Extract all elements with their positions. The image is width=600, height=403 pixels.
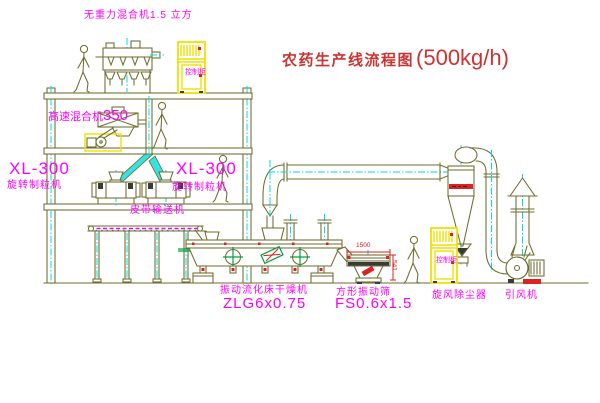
- control-cabinet-top: [178, 42, 205, 93]
- vibrating-sieve: [347, 249, 396, 284]
- worker-top-floor: [74, 45, 89, 92]
- granulator-right: [142, 170, 190, 206]
- worker-granulation-floor: [213, 155, 228, 202]
- worker-second-floor: [152, 102, 167, 149]
- granulator-left: [92, 170, 140, 206]
- gravity-free-mixer: [96, 38, 164, 93]
- high-speed-mixer: [85, 107, 146, 151]
- process-diagram-canvas: [0, 0, 600, 403]
- fluid-bed-dryer: [186, 214, 354, 283]
- exhaust-stack: [508, 174, 537, 258]
- worker-ground: [404, 236, 419, 283]
- control-cabinet-bottom: [431, 228, 457, 283]
- induced-draft-fan: [506, 246, 544, 284]
- cyclone-outlet-pipe: [470, 148, 508, 274]
- cad-process-flow-drawing: 农药生产线流程图 (500kg/h) 无重力混合机1.5 立方 高速混合机350…: [0, 0, 600, 403]
